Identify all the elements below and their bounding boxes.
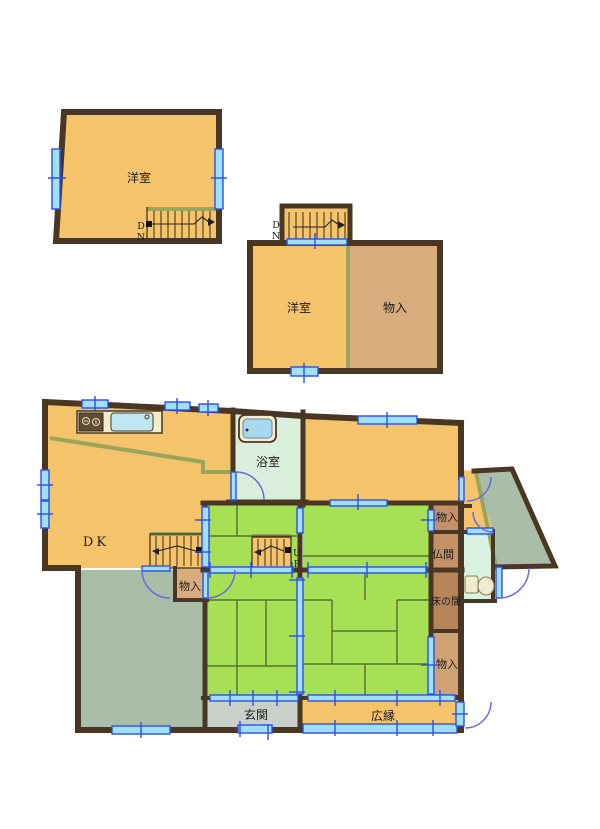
closet-label-hall: 物入 [179, 579, 201, 593]
stair-threshold [287, 239, 347, 245]
veranda-window [303, 724, 457, 733]
floor-plan: トイレ 洋室 D N D N 洋室 物入 DK 浴室 U P 物入 物入 仏間 … [0, 0, 600, 829]
stairs-down-label-d: D [272, 220, 280, 231]
room-label-2f-east: 洋室 [287, 300, 311, 315]
room-label-tokonoma: 床の間 [431, 595, 461, 608]
room-label-veranda: 広縁 [371, 708, 395, 723]
fusuma [297, 508, 303, 533]
room-tatami-se [303, 572, 430, 698]
closet-label-2f: 物入 [383, 301, 407, 315]
sink-icon [111, 413, 153, 431]
room-label-bath: 浴室 [256, 454, 280, 469]
room-label-2f-west: 洋室 [127, 170, 151, 185]
hall-door [142, 566, 170, 571]
window [215, 149, 223, 209]
stairs-up-label-p: P [294, 559, 301, 570]
back-door [496, 567, 502, 598]
room-label-dk: DK [83, 535, 109, 550]
stairs-up-label-u: U [293, 548, 301, 559]
stairs-down-label-n: N [137, 232, 145, 243]
veranda-door-arc [465, 702, 491, 728]
closet-label-se: 物入 [436, 657, 458, 671]
entrance-sliding-door [238, 725, 272, 733]
window [52, 149, 60, 209]
floor-plan-page: トイレ 洋室 D N D N 洋室 物入 DK 浴室 U P 物入 物入 仏間 … [0, 0, 600, 829]
room-label-butsuma: 仏間 [432, 548, 454, 561]
back-door-arc [499, 568, 529, 598]
bathtub-icon [239, 415, 276, 442]
room-tatami-sw [205, 572, 300, 698]
closet-label-ne: 物入 [436, 510, 458, 524]
stairs-down-label-d: D [137, 221, 145, 232]
bath-door [231, 472, 236, 500]
veranda-partition [308, 695, 455, 701]
room-label-entrance: 玄関 [244, 707, 268, 722]
entrance-partition [210, 695, 298, 701]
fusuma [202, 507, 209, 567]
kitchen-counter-icon [77, 411, 162, 433]
room-tatami-ne [303, 503, 430, 570]
porch-door [459, 477, 464, 501]
tatami-door [203, 572, 208, 598]
stairs-down-label-n: N [272, 231, 280, 242]
room-northeast [303, 416, 461, 503]
